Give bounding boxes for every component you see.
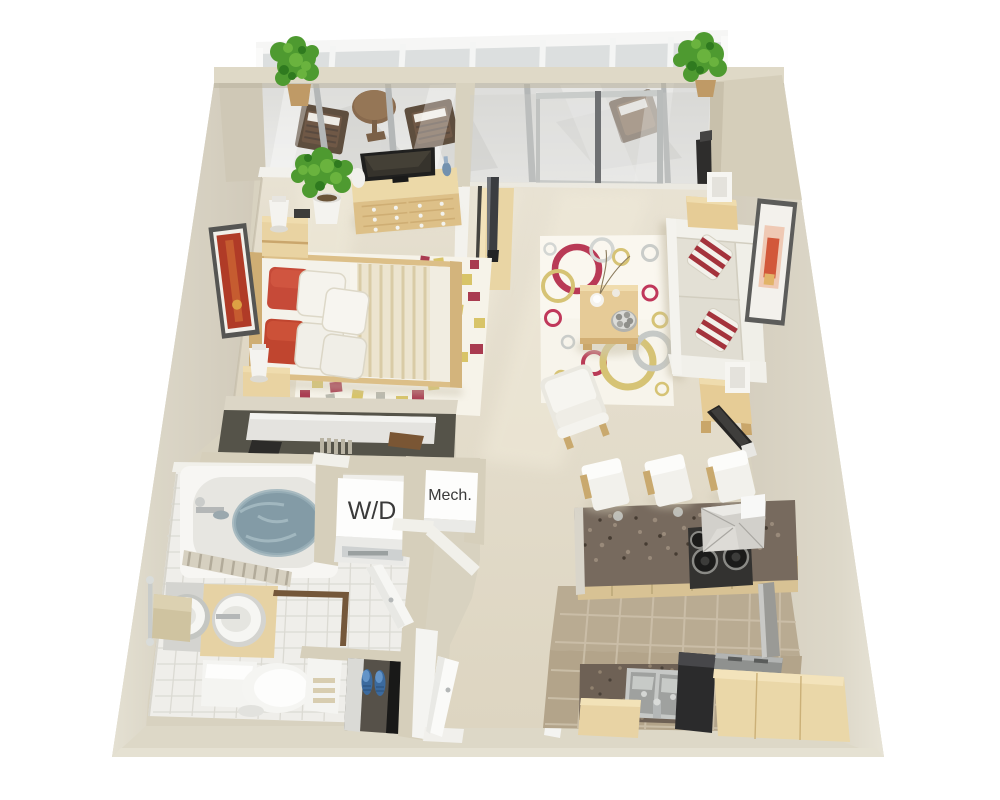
svg-text:W/D: W/D <box>348 497 397 525</box>
svg-text:Mech.: Mech. <box>428 487 472 504</box>
